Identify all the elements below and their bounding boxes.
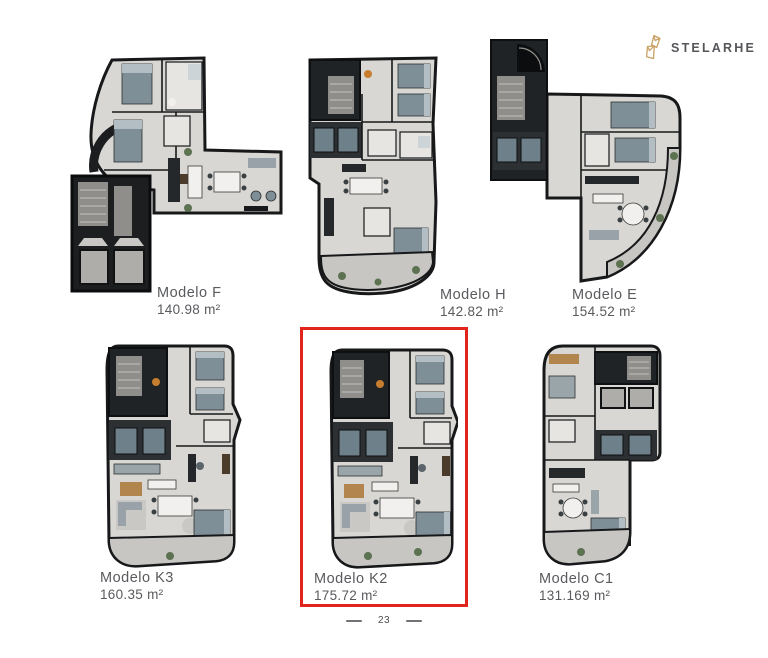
floorplan-modelo-k3: [92, 342, 247, 570]
plan-area: 160.35 m²: [100, 587, 174, 602]
floorplan-modelo-k2-card: [318, 346, 458, 570]
plan-area: 131.169 m²: [539, 588, 614, 603]
floorplan-modelo-k3-card: [92, 342, 247, 570]
plan-area: 140.98 m²: [157, 302, 221, 317]
plan-name: Modelo E: [572, 288, 637, 303]
floorplan-modelo-k2: [318, 346, 458, 570]
plan-area: 154.52 m²: [572, 304, 637, 319]
plan-label-modelo-f: Modelo F 140.98 m²: [157, 286, 221, 317]
footer-dash-right: [406, 620, 422, 622]
floorplan-modelo-f-card: [68, 50, 290, 293]
floorplan-modelo-e-card: [483, 36, 685, 283]
plan-area: 142.82 m²: [440, 304, 506, 319]
floorplan-modelo-c1: [533, 342, 668, 572]
plan-name: Modelo C1: [539, 572, 614, 587]
floorplan-modelo-c1-card: [533, 342, 668, 572]
plan-name: Modelo H: [440, 288, 506, 303]
brochure-page: STELARHE: [0, 0, 768, 658]
page-footer: 23: [0, 615, 768, 626]
plan-label-modelo-e: Modelo E 154.52 m²: [572, 288, 637, 319]
plan-label-modelo-h: Modelo H 142.82 m²: [440, 288, 506, 319]
plan-name: Modelo K2: [314, 572, 388, 587]
page-number: 23: [378, 615, 390, 626]
plan-label-modelo-c1: Modelo C1 131.169 m²: [539, 572, 614, 603]
floorplan-modelo-h-card: [298, 50, 452, 300]
footer-dash-left: [346, 620, 362, 622]
plan-name: Modelo K3: [100, 571, 174, 586]
plan-area: 175.72 m²: [314, 588, 388, 603]
plan-label-modelo-k3: Modelo K3 160.35 m²: [100, 571, 174, 602]
floorplan-modelo-h: [298, 50, 452, 300]
plan-name: Modelo F: [157, 286, 221, 301]
plan-label-modelo-k2: Modelo K2 175.72 m²: [314, 572, 388, 603]
floorplan-modelo-f: [68, 50, 290, 293]
floorplan-modelo-e: [483, 36, 685, 283]
